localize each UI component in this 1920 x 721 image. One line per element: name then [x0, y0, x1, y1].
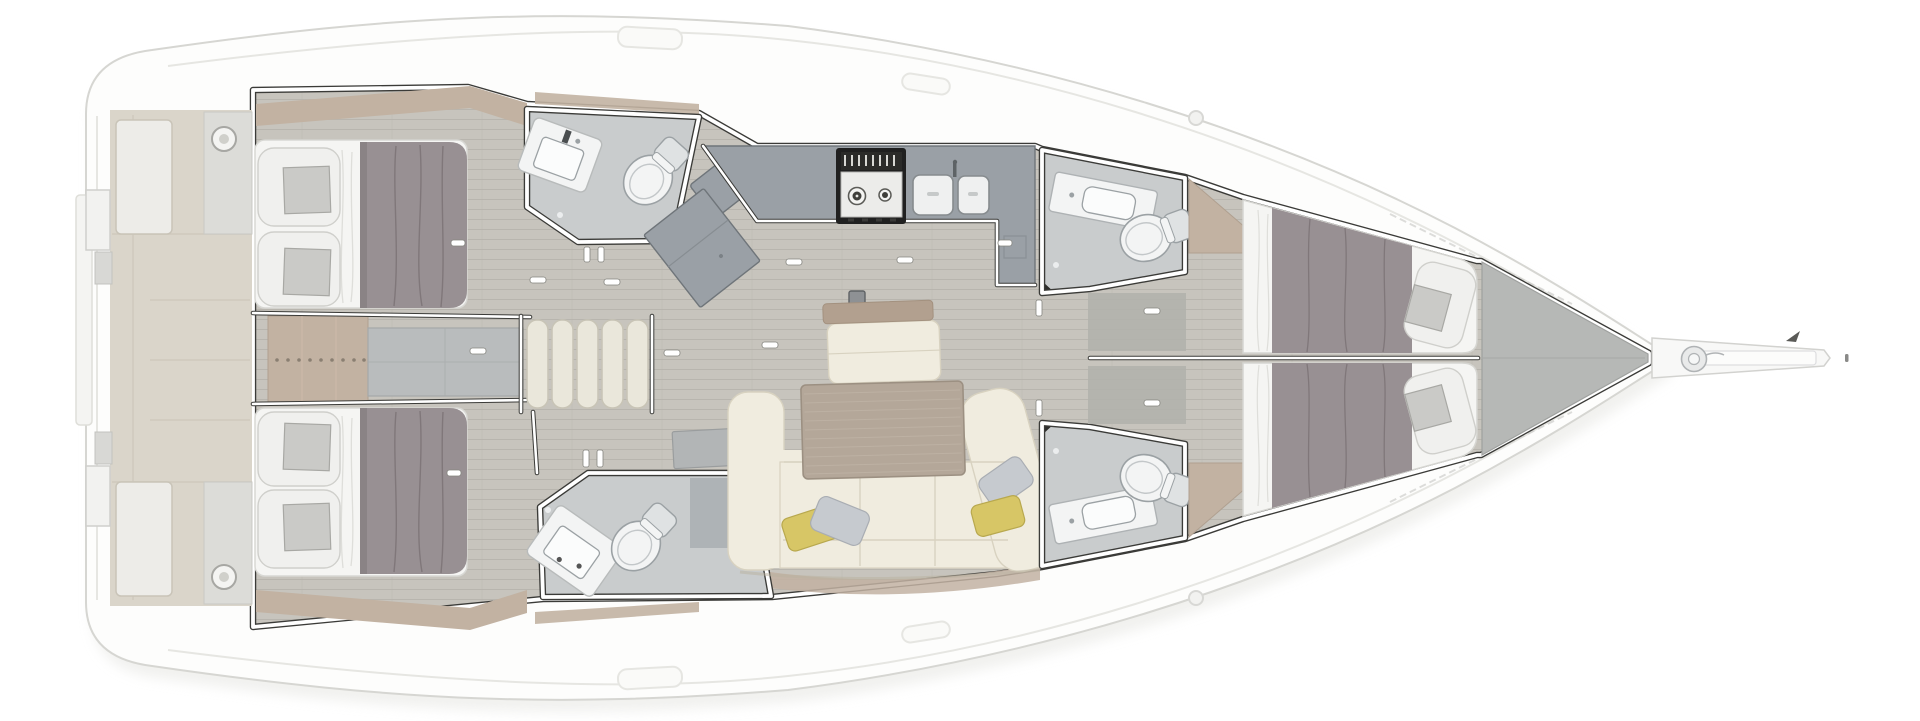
duvet-fold: [360, 408, 367, 574]
stove: [836, 148, 906, 224]
door-frame-mark: [1036, 400, 1042, 416]
duvet-fold: [360, 142, 367, 308]
transom-gate: [86, 466, 110, 526]
cabin-sole: [1088, 366, 1186, 424]
duvet: [360, 408, 467, 574]
rudder-post: [95, 432, 112, 464]
cabin-sole: [1088, 293, 1186, 351]
floor-drain: [1053, 448, 1059, 454]
door-frame-mark: [584, 247, 590, 262]
pillow-insert: [283, 503, 331, 551]
handle-dash: [998, 240, 1012, 246]
duvet: [360, 142, 467, 308]
handle-dash: [451, 240, 465, 246]
pillow-insert: [283, 166, 331, 214]
dining-table: [801, 381, 965, 479]
yacht-floor-plan-canvas: [0, 0, 1920, 721]
locker-lid: [116, 120, 172, 234]
door-frame-mark: [598, 247, 604, 262]
floor-drain: [1053, 262, 1059, 268]
faucet-icon: [953, 163, 957, 177]
door-frame-mark: [583, 450, 589, 467]
door-frame-mark: [597, 450, 603, 467]
floor-drain: [557, 212, 563, 218]
double-berth: [255, 140, 467, 308]
yacht-floor-plan: [0, 0, 1920, 721]
floor-drain: [545, 507, 551, 513]
pillow-insert: [283, 423, 331, 471]
handle-dash: [897, 257, 913, 263]
handle-dash: [1144, 308, 1160, 314]
handle-dash: [786, 259, 802, 265]
handle-dash: [664, 350, 680, 356]
double-berth: [255, 408, 467, 576]
transom-gate: [86, 190, 110, 250]
handle-dash: [604, 279, 620, 285]
backrest-rail: [823, 300, 934, 324]
handle-dash: [447, 470, 461, 476]
door-frame-mark: [1036, 300, 1042, 316]
handle-dash: [530, 277, 546, 283]
forestay-fitting: [1845, 354, 1849, 362]
five-step-ladder: [527, 320, 648, 408]
bow: [1652, 331, 1849, 378]
handle-dash: [762, 342, 778, 348]
swim-platform-transom: [86, 110, 252, 606]
handle-dash: [1144, 400, 1160, 406]
locker-lid: [116, 482, 172, 596]
handle-dash: [470, 348, 486, 354]
wind-indicator-icon: [1786, 331, 1800, 342]
rudder-post: [95, 252, 112, 284]
pillow-insert: [283, 248, 331, 296]
